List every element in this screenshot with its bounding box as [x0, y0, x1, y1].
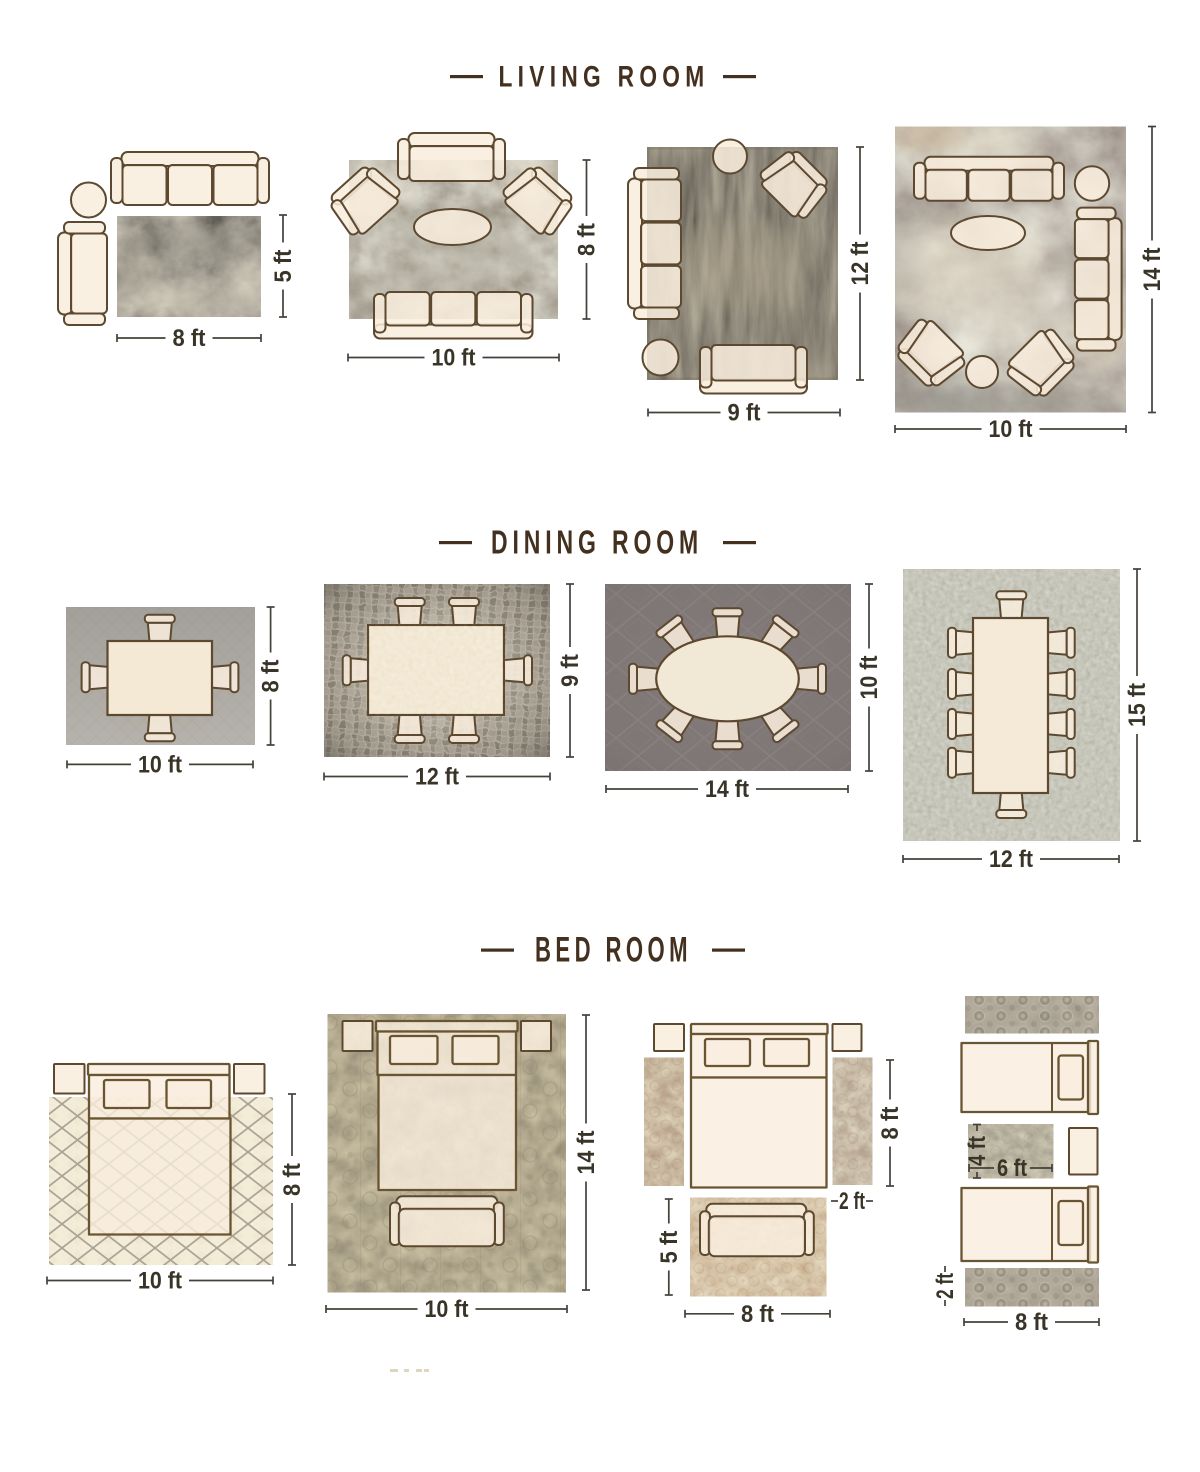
- svg-text:8 ft: 8 ft: [741, 1301, 774, 1328]
- svg-text:9 ft: 9 ft: [728, 400, 761, 427]
- svg-text:8 ft: 8 ft: [258, 659, 285, 692]
- svg-text:8 ft: 8 ft: [574, 223, 601, 256]
- svg-text:8 ft: 8 ft: [279, 1163, 306, 1196]
- svg-text:12 ft: 12 ft: [847, 242, 874, 286]
- svg-text:8 ft: 8 ft: [173, 325, 206, 352]
- svg-text:6 ft: 6 ft: [997, 1155, 1027, 1182]
- svg-text:10 ft: 10 ft: [425, 1296, 469, 1323]
- svg-text:8 ft: 8 ft: [1015, 1309, 1048, 1336]
- svg-text:14 ft: 14 ft: [1139, 248, 1166, 292]
- svg-text:9 ft: 9 ft: [557, 654, 584, 687]
- svg-text:LIVING ROOM: LIVING ROOM: [499, 61, 710, 94]
- svg-text:12 ft: 12 ft: [415, 764, 459, 791]
- svg-text:5 ft: 5 ft: [270, 249, 297, 282]
- svg-text:12 ft: 12 ft: [989, 846, 1033, 873]
- svg-text:BED ROOM: BED ROOM: [535, 931, 692, 970]
- svg-text:10 ft: 10 ft: [989, 416, 1033, 443]
- svg-text:10 ft: 10 ft: [138, 1268, 182, 1295]
- svg-text:10 ft: 10 ft: [432, 345, 476, 372]
- svg-text:2 ft: 2 ft: [932, 1273, 959, 1299]
- svg-text:5 ft: 5 ft: [656, 1230, 683, 1263]
- svg-text:DINING ROOM: DINING ROOM: [491, 524, 703, 561]
- svg-text:14 ft: 14 ft: [705, 776, 749, 803]
- svg-text:4 ft: 4 ft: [964, 1136, 991, 1166]
- svg-text:10 ft: 10 ft: [856, 656, 883, 700]
- svg-text:15 ft: 15 ft: [1124, 683, 1151, 727]
- svg-text:2 ft: 2 ft: [839, 1188, 865, 1215]
- svg-text:10 ft: 10 ft: [138, 751, 182, 778]
- svg-text:14 ft: 14 ft: [573, 1131, 600, 1175]
- svg-text:8 ft: 8 ft: [877, 1106, 904, 1139]
